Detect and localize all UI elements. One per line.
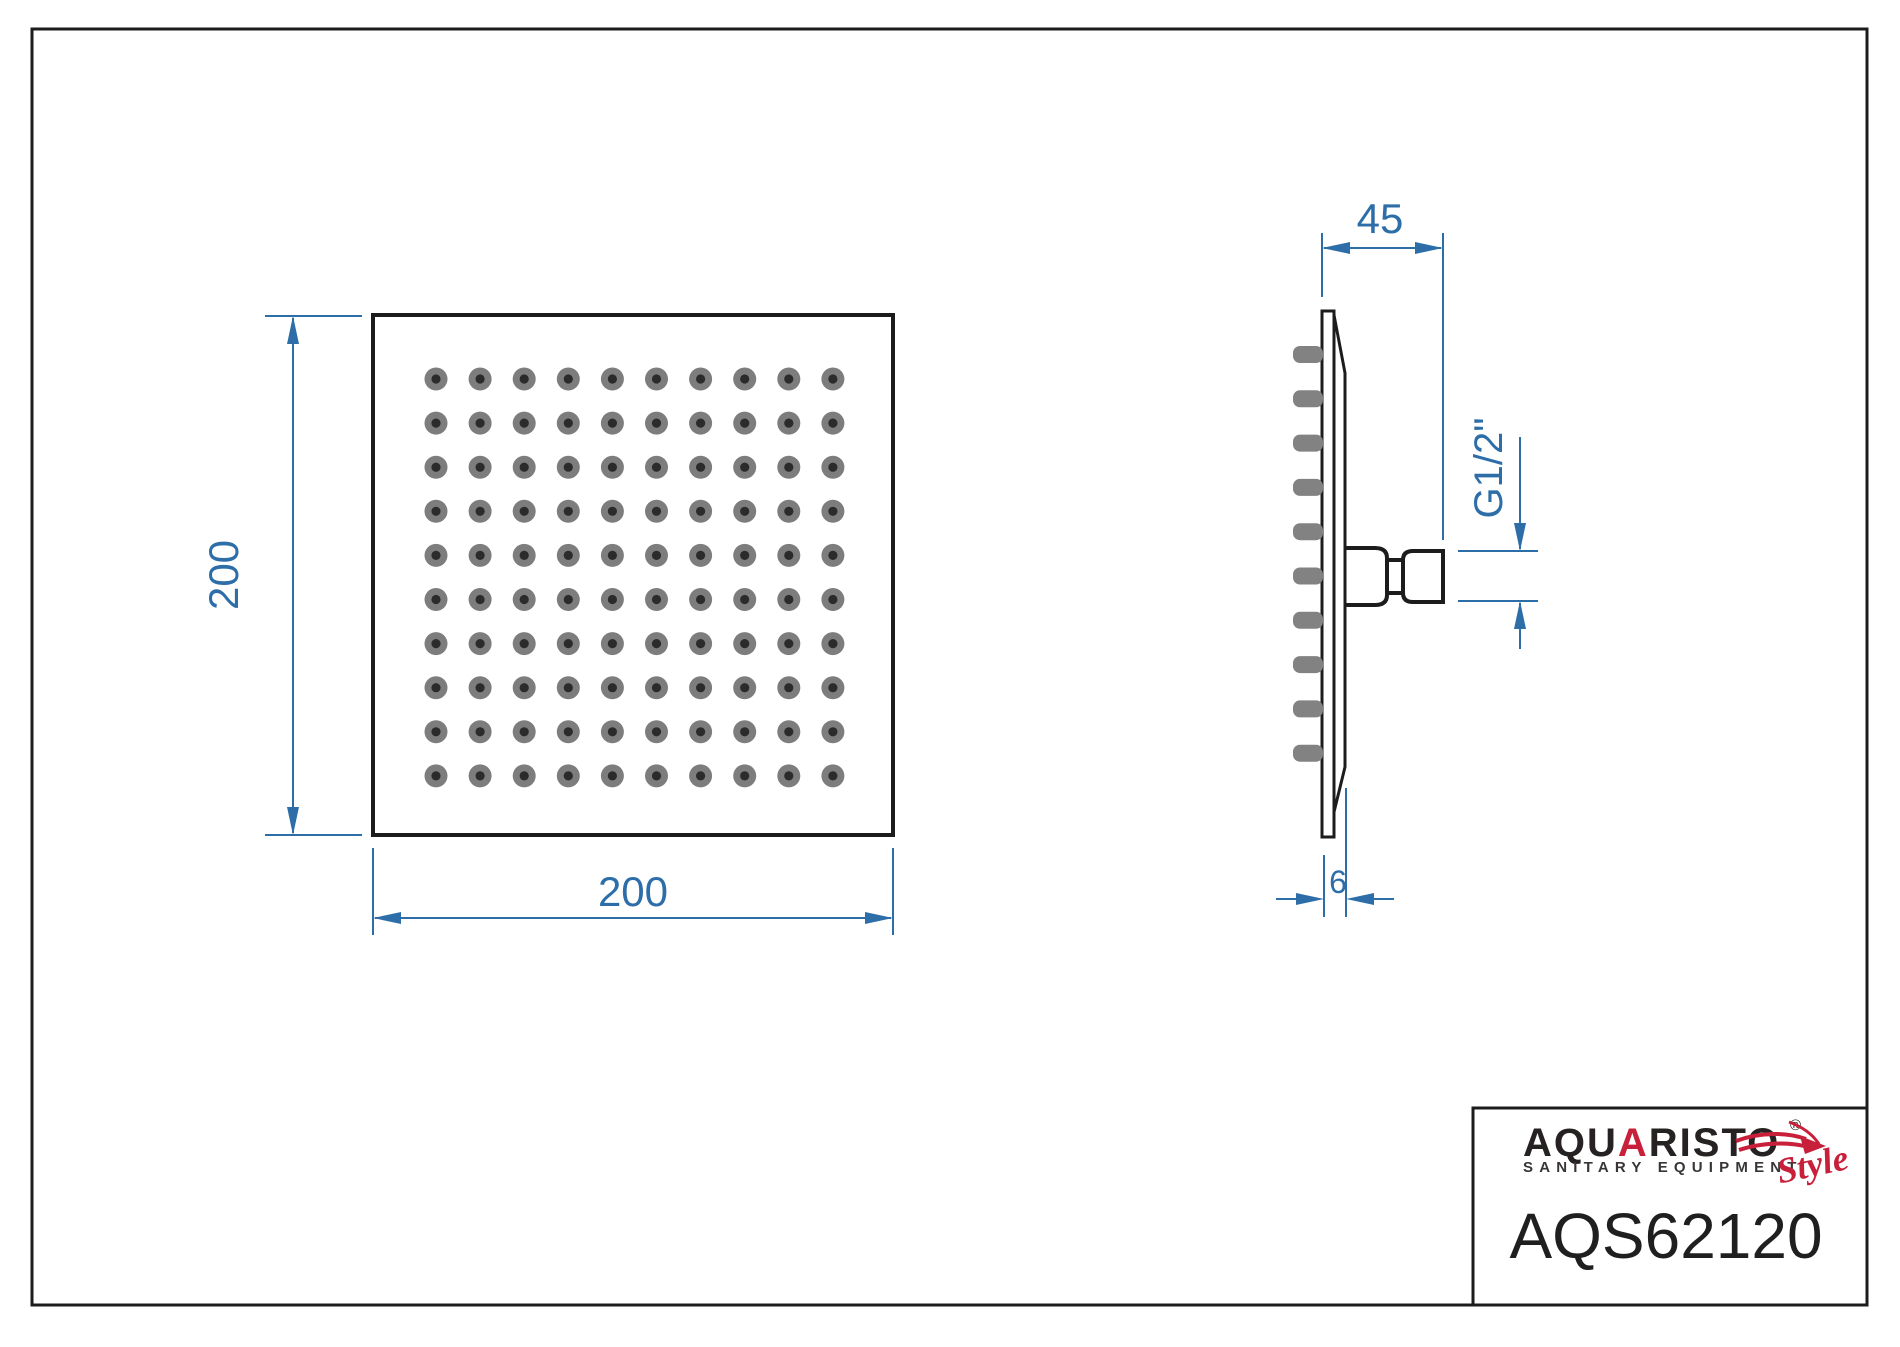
- spray-hole-center: [476, 683, 485, 692]
- spray-hole-center: [564, 419, 573, 428]
- spray-hole-center: [520, 595, 529, 604]
- spray-hole-center: [608, 463, 617, 472]
- spray-hole-center: [740, 551, 749, 560]
- spray-hole-center: [564, 683, 573, 692]
- spray-hole-center: [828, 551, 837, 560]
- spray-hole-center: [520, 771, 529, 780]
- shower-head-front-face: [373, 315, 893, 835]
- spray-hole-center: [608, 639, 617, 648]
- side-depth-label: 45: [1357, 195, 1404, 242]
- spray-hole-center: [828, 595, 837, 604]
- spray-hole-center: [652, 727, 661, 736]
- spray-hole-center: [784, 374, 793, 383]
- spray-hole-center: [564, 595, 573, 604]
- spray-hole-center: [520, 683, 529, 692]
- arrowhead-up: [287, 316, 299, 344]
- spray-hole-center: [608, 419, 617, 428]
- front-view: 200 200: [200, 315, 893, 935]
- spray-hole-center: [652, 419, 661, 428]
- spray-hole-center: [740, 419, 749, 428]
- spray-hole-center: [431, 507, 440, 516]
- spray-hole-center: [608, 374, 617, 383]
- spray-hole-center: [696, 419, 705, 428]
- arrowhead-right: [865, 912, 893, 924]
- spray-hole-center: [431, 374, 440, 383]
- side-view: 45 G1/2" 6: [1276, 195, 1538, 917]
- spray-hole-center: [476, 639, 485, 648]
- spray-hole-center: [696, 595, 705, 604]
- spray-hole-center: [431, 639, 440, 648]
- spray-hole-center: [740, 595, 749, 604]
- spray-hole-center: [608, 507, 617, 516]
- spray-hole-center: [784, 639, 793, 648]
- nozzle: [1293, 568, 1323, 585]
- spray-hole-center: [431, 551, 440, 560]
- spray-hole-center: [784, 771, 793, 780]
- spray-hole-center: [520, 507, 529, 516]
- spray-hole-center: [520, 551, 529, 560]
- spray-hole-center: [828, 771, 837, 780]
- spray-hole-center: [740, 374, 749, 383]
- spray-hole-center: [696, 639, 705, 648]
- spray-hole-center: [696, 727, 705, 736]
- spray-hole-center: [431, 419, 440, 428]
- shower-head-body-profile: [1334, 315, 1345, 812]
- spray-hole-center: [520, 639, 529, 648]
- spray-hole-center: [740, 639, 749, 648]
- spray-hole-center: [652, 595, 661, 604]
- spray-hole-center: [564, 639, 573, 648]
- arrowhead-down: [1514, 523, 1526, 551]
- face-plate-profile: [1322, 311, 1334, 837]
- model-number: AQS62120: [1509, 1200, 1822, 1272]
- spray-hole-center: [476, 463, 485, 472]
- spray-hole-center: [652, 374, 661, 383]
- nozzle: [1293, 479, 1323, 496]
- spray-hole-center: [652, 507, 661, 516]
- arrowhead-left: [1322, 242, 1350, 254]
- nozzle: [1293, 346, 1323, 363]
- spray-hole-center: [740, 463, 749, 472]
- spray-hole-center: [652, 683, 661, 692]
- spray-hole-center: [564, 727, 573, 736]
- spray-hole-center: [476, 595, 485, 604]
- nozzle: [1293, 390, 1323, 407]
- connector-neck: [1387, 560, 1403, 593]
- arrowhead-up: [1514, 601, 1526, 629]
- spray-hole-center: [828, 463, 837, 472]
- nozzle: [1293, 656, 1323, 673]
- spray-hole-center: [740, 683, 749, 692]
- spray-hole-center: [564, 771, 573, 780]
- spray-hole-center: [476, 419, 485, 428]
- spray-hole-center: [608, 683, 617, 692]
- spray-hole-center: [520, 463, 529, 472]
- spray-hole-center: [740, 771, 749, 780]
- nozzle: [1293, 435, 1323, 452]
- plate-thickness-label: 6: [1329, 864, 1347, 900]
- spray-hole-center: [476, 771, 485, 780]
- spray-hole-center: [476, 374, 485, 383]
- arrowhead-left: [1346, 893, 1374, 905]
- spray-hole-center: [828, 683, 837, 692]
- nozzle: [1293, 745, 1323, 762]
- front-width-label: 200: [598, 868, 668, 915]
- spray-hole-center: [652, 639, 661, 648]
- spray-hole-center: [784, 419, 793, 428]
- nozzle: [1293, 700, 1323, 717]
- spray-hole-center: [520, 419, 529, 428]
- title-block: AQUARISTO ® SANITARY EQUIPMENT Style AQS…: [1473, 1108, 1867, 1305]
- nozzle-row: [1293, 346, 1323, 762]
- spray-hole-center: [784, 551, 793, 560]
- spray-hole-center: [828, 639, 837, 648]
- spray-hole-center: [696, 771, 705, 780]
- spray-hole-center: [652, 771, 661, 780]
- spray-hole-center: [784, 683, 793, 692]
- spray-hole-center: [608, 727, 617, 736]
- front-height-label: 200: [200, 540, 247, 610]
- spray-hole-center: [828, 507, 837, 516]
- spray-hole-center: [608, 551, 617, 560]
- dimension-thread: G1/2": [1458, 418, 1538, 649]
- arrowhead-down: [287, 807, 299, 835]
- drawing-page: 200 200 45: [0, 0, 1900, 1347]
- technical-drawing-canvas: 200 200 45: [0, 0, 1900, 1347]
- connector-flange: [1344, 548, 1387, 605]
- spray-hole-center: [828, 374, 837, 383]
- dimension-front-width: 200: [373, 848, 893, 935]
- spray-hole-center: [564, 551, 573, 560]
- spray-hole-center: [740, 727, 749, 736]
- spray-hole-center: [476, 507, 485, 516]
- spray-hole-center: [652, 551, 661, 560]
- spray-hole-center: [784, 727, 793, 736]
- brand-tagline: SANITARY EQUIPMENT: [1523, 1159, 1803, 1176]
- spray-hole-center: [431, 683, 440, 692]
- spray-hole-center: [652, 463, 661, 472]
- spray-hole-center: [564, 374, 573, 383]
- spray-hole-center: [431, 727, 440, 736]
- dimension-front-height: 200: [200, 316, 362, 835]
- spray-hole-center: [696, 507, 705, 516]
- thread-size-label: G1/2": [1467, 418, 1511, 519]
- arrowhead-right: [1415, 242, 1443, 254]
- arrowhead-left: [373, 912, 401, 924]
- spray-hole-center: [431, 595, 440, 604]
- thread-fitting: [1403, 551, 1443, 602]
- spray-hole-center: [608, 771, 617, 780]
- spray-hole-center: [828, 419, 837, 428]
- spray-hole-center: [828, 727, 837, 736]
- spray-hole-center: [608, 595, 617, 604]
- arrowhead-right: [1296, 893, 1324, 905]
- spray-hole-center: [520, 727, 529, 736]
- spray-hole-center: [520, 374, 529, 383]
- spray-hole-center: [564, 463, 573, 472]
- nozzle: [1293, 523, 1323, 540]
- spray-hole-center: [696, 551, 705, 560]
- spray-hole-center: [476, 551, 485, 560]
- spray-hole-center: [696, 683, 705, 692]
- spray-hole-center: [696, 374, 705, 383]
- spray-hole-center: [431, 771, 440, 780]
- spray-hole-center: [784, 507, 793, 516]
- spray-hole-center: [740, 507, 749, 516]
- spray-hole-center: [431, 463, 440, 472]
- nozzle: [1293, 612, 1323, 629]
- spray-hole-center: [564, 507, 573, 516]
- spray-hole-center: [696, 463, 705, 472]
- spray-hole-center: [784, 595, 793, 604]
- spray-hole-center: [784, 463, 793, 472]
- spray-hole-center: [476, 727, 485, 736]
